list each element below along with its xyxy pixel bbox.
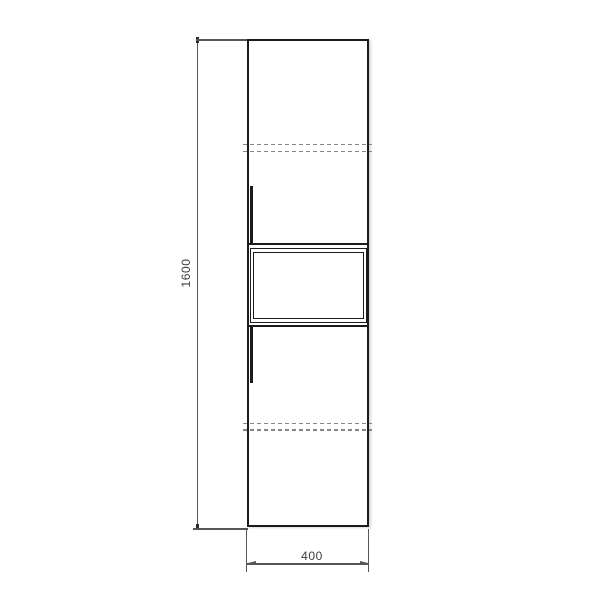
width-extension-line-right	[368, 529, 369, 572]
width-extension-line-left	[246, 530, 247, 572]
height-dimension-label: 1600	[179, 258, 193, 287]
drawing-sheet: 1600 400	[0, 0, 600, 600]
height-extension-line-bottom	[193, 528, 248, 529]
hidden-shelf-line-lower-1	[243, 423, 372, 425]
height-dimension-line	[197, 40, 198, 529]
width-dimension-label: 400	[299, 549, 325, 563]
lower-door-handle	[250, 326, 253, 383]
hidden-shelf-line-lower-2	[243, 429, 372, 431]
open-niche-inner-frame	[253, 252, 364, 319]
width-dimension-arrow-left-icon	[248, 561, 256, 565]
hidden-shelf-line-upper-1	[243, 144, 372, 146]
upper-door-bottom-edge	[247, 243, 369, 245]
upper-door-handle	[250, 186, 253, 244]
width-dimension-arrow-right-icon	[360, 561, 368, 565]
lower-door-top-edge	[247, 325, 369, 327]
height-extension-line-top	[196, 39, 247, 40]
hidden-shelf-line-upper-2	[243, 151, 372, 153]
width-dimension-line	[247, 563, 370, 564]
